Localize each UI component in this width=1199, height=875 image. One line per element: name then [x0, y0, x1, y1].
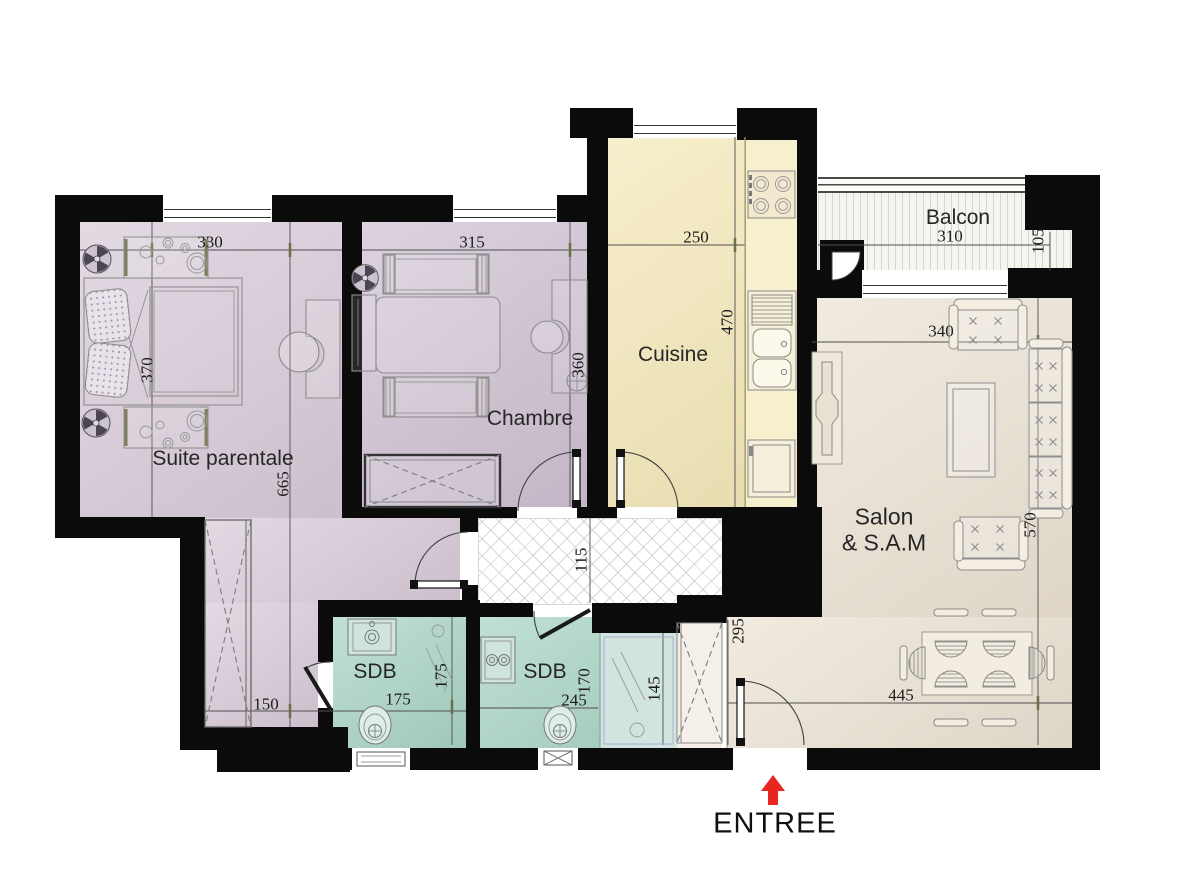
wall-segment	[333, 748, 352, 770]
wall-segment	[466, 617, 480, 748]
window	[633, 108, 737, 138]
wall-segment	[462, 585, 478, 603]
room-label-suite: Suite parentale	[152, 447, 293, 471]
floor-chambre	[362, 222, 587, 507]
wall-segment	[1072, 226, 1100, 765]
room-label-salon2: & S.A.M	[842, 530, 926, 557]
dim-salon-side: 570	[1022, 512, 1039, 538]
dim-suite-length: 665	[275, 471, 292, 497]
wall-segment	[578, 748, 733, 770]
wall-segment	[820, 240, 864, 272]
window	[862, 270, 1008, 298]
wall-segment	[318, 708, 333, 748]
wall-segment	[342, 195, 362, 518]
wall-segment	[272, 195, 453, 222]
floor-salon-upper	[812, 298, 1072, 617]
dim-salon-entry: 295	[730, 618, 747, 644]
wall-segment	[587, 108, 608, 518]
wall-vent	[538, 748, 578, 770]
window	[453, 195, 557, 222]
window	[163, 195, 272, 222]
wall-segment	[460, 507, 478, 532]
wall-segment	[722, 507, 822, 617]
floor-entry-closet	[677, 623, 722, 748]
room-label-cuisine: Cuisine	[638, 343, 708, 367]
dim-sdb2-depth: 170	[576, 668, 593, 694]
floor-salon-lower	[727, 617, 1072, 748]
wall-segment	[318, 600, 480, 617]
floor-plan: Suite parentale Chambre Cuisine Balcon S…	[0, 0, 1199, 875]
dim-chambre-side: 360	[570, 352, 587, 378]
kitchen-counter	[745, 137, 798, 507]
dim-cuisine-top: 250	[683, 229, 709, 246]
wall-segment	[410, 748, 538, 770]
wall-segment	[577, 507, 617, 518]
wall-segment	[677, 595, 727, 623]
dim-salon-top: 340	[928, 323, 954, 340]
dim-balcon-depth: 105	[1030, 228, 1047, 254]
dim-suite-bottom: 150	[253, 696, 279, 713]
wall-segment	[592, 603, 680, 633]
wall-segment	[180, 517, 205, 750]
room-label-sdb2: SDB	[523, 660, 566, 684]
balcony-railing	[818, 177, 1025, 193]
dim-suite-top: 330	[197, 234, 223, 251]
wall-vent	[352, 748, 410, 770]
dim-chambre-top: 315	[459, 234, 485, 251]
floor-suite-parentale-lower	[205, 518, 460, 603]
dim-salon-bottom: 445	[888, 687, 914, 704]
entry-arrow-icon	[768, 790, 778, 805]
wall-segment	[55, 195, 80, 520]
dim-cuisine-side: 470	[719, 309, 736, 335]
room-label-chambre: Chambre	[487, 407, 573, 431]
room-label-sdb1: SDB	[353, 660, 396, 684]
dim-sdb1-width: 175	[385, 691, 411, 708]
floor-hallway	[478, 518, 724, 605]
entry-label: ENTREE	[713, 808, 837, 841]
floor-suite-parentale	[80, 222, 342, 518]
wall-segment	[318, 617, 333, 662]
wall-segment	[797, 270, 862, 298]
floor-shower	[600, 633, 677, 748]
dim-sdb2-shower: 145	[646, 676, 663, 702]
wall-segment	[342, 507, 517, 518]
dim-balcon-width: 310	[937, 228, 963, 245]
dim-suite-left: 370	[139, 357, 156, 383]
room-label-salon: Salon	[855, 504, 914, 531]
wall-segment	[737, 108, 817, 140]
wall-segment	[480, 603, 533, 617]
wall-segment	[1025, 175, 1100, 230]
dim-hall-width: 115	[573, 548, 590, 573]
dim-sdb2-width: 245	[561, 692, 587, 709]
entry-arrow-icon	[761, 775, 785, 791]
wall-segment	[807, 748, 1100, 770]
wall-segment	[217, 750, 350, 772]
wall-segment	[797, 137, 817, 518]
dim-sdb1-depth: 175	[433, 663, 450, 689]
